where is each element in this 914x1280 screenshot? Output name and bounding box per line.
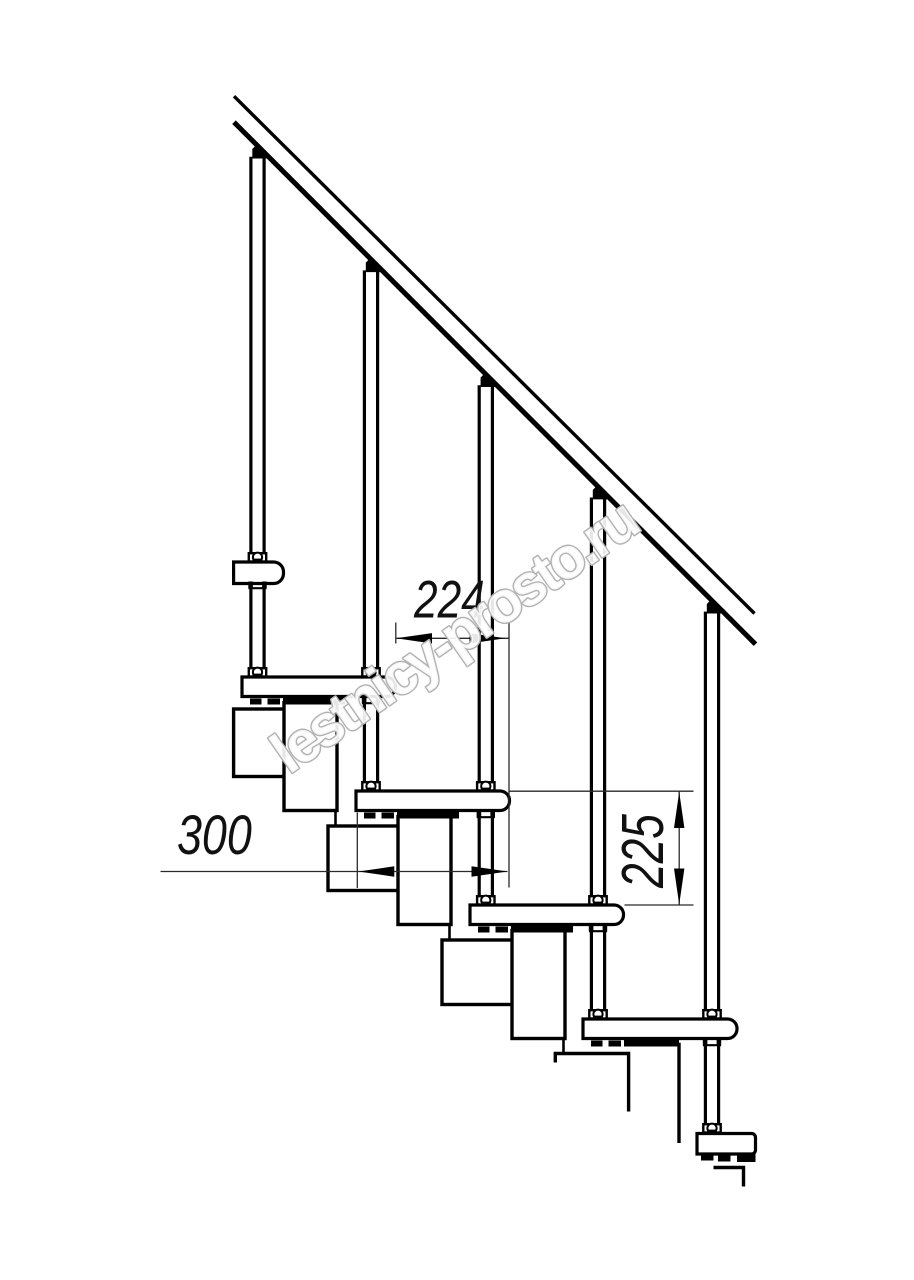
svg-text:225: 225 — [611, 813, 677, 889]
svg-text:300: 300 — [177, 803, 252, 866]
